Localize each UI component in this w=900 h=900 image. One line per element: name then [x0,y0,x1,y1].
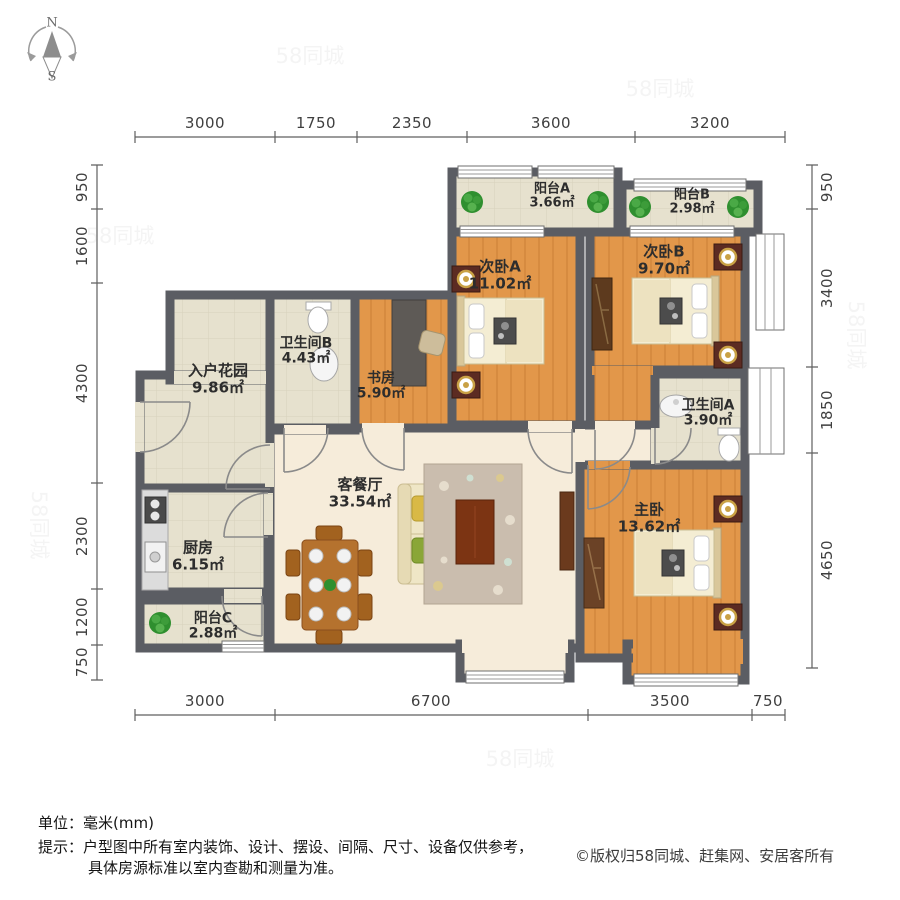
room-label-balcony-b: 阳台B 2.98㎡ [669,189,714,218]
watermark: 58同城 [86,220,155,250]
footer-unit-note: 单位：毫米(mm) [38,812,154,833]
room-label-bathroom-b: 卫生间B 4.43㎡ [280,337,333,368]
dim-bottom-2: 6700 [411,692,451,710]
dim-top-4: 3600 [531,114,571,132]
dim-top-3: 2350 [392,114,432,132]
dim-left-2: 1600 [73,226,91,266]
room-label-bathroom-a: 卫生间A 3.90㎡ [682,399,735,430]
watermark: 58同城 [842,301,872,370]
dim-right-1: 950 [818,172,836,202]
kitchen-counter-icon [142,490,168,590]
dim-bottom-3: 3500 [650,692,690,710]
floorplan-stage: N S 58同城 58同城 58同城 58同城 58同城 58同城 3000 1… [0,0,900,900]
room-label-study: 书房 5.90㎡ [357,372,406,403]
footer-copyright: ©版权归58同城、赶集网、安居客所有 [575,845,834,866]
tv-stand-icon [560,492,574,570]
room-label-living: 客餐厅 33.54㎡ [329,477,391,510]
dim-right-2: 3400 [818,268,836,308]
dim-top-2: 1750 [296,114,336,132]
dim-right-3: 1850 [818,390,836,430]
watermark: 58同城 [276,40,345,70]
room-label-kitchen: 厨房 6.15㎡ [172,540,224,573]
room-label-bedroom-b: 次卧B 9.70㎡ [638,244,690,277]
compass-south-label: S [48,70,57,85]
footer-tip-line1: 提示：户型图中所有室内装饰、设计、摆设、间隔、尺寸、设备仅供参考， [38,836,533,857]
dim-bottom-4: 750 [753,692,783,710]
room-label-entry-garden: 入户花园 9.86㎡ [188,363,248,396]
dim-left-5: 1200 [73,597,91,637]
dim-left-6: 750 [73,647,91,677]
room-label-master: 主卧 13.62㎡ [618,502,680,535]
wardrobe-bedroomB-icon [592,278,612,350]
coffee-table-icon [456,500,494,564]
dim-top-5: 3200 [690,114,730,132]
watermark: 58同城 [486,743,555,773]
room-label-balcony-a: 阳台A 3.66㎡ [529,183,574,212]
watermark: 58同城 [25,491,55,560]
footer-tip-line2: 具体房源标准以室内查勘和测量为准。 [88,857,343,878]
dim-right-4: 4650 [818,540,836,580]
dim-left-4: 2300 [73,516,91,556]
dim-left-1: 950 [73,172,91,202]
dim-top-1: 3000 [185,114,225,132]
dim-left-3: 4300 [73,363,91,403]
wardrobe-master-icon [584,538,604,608]
dim-bottom-1: 3000 [185,692,225,710]
room-label-bedroom-a: 次卧A 11.02㎡ [469,259,531,292]
floorplan-drawing [0,0,900,900]
room-label-balcony-c: 阳台C 2.88㎡ [189,612,238,643]
compass-north-label: N [46,16,57,31]
watermark: 58同城 [626,73,695,103]
